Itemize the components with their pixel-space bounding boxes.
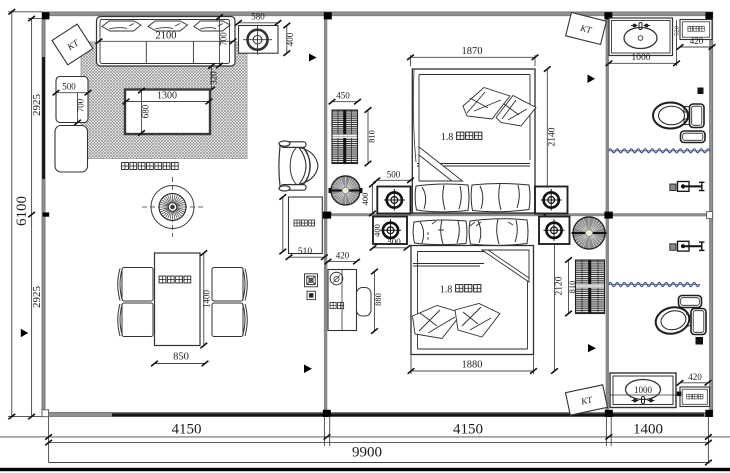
svg-text:520: 520 — [674, 26, 681, 36]
svg-text:400: 400 — [372, 224, 382, 237]
svg-text:1000: 1000 — [632, 53, 651, 63]
svg-text:400: 400 — [360, 193, 370, 206]
svg-text:420: 420 — [336, 251, 350, 261]
svg-text:1880: 1880 — [462, 360, 483, 371]
svg-text:450: 450 — [336, 91, 350, 101]
svg-text:500: 500 — [62, 82, 76, 92]
svg-text:580: 580 — [251, 12, 265, 22]
svg-text:6100: 6100 — [14, 196, 30, 226]
svg-text:4150: 4150 — [453, 422, 483, 438]
svg-text:500: 500 — [387, 170, 401, 180]
svg-text:2140: 2140 — [548, 127, 558, 146]
svg-text:2925: 2925 — [31, 286, 43, 309]
svg-text:2100: 2100 — [156, 31, 177, 42]
svg-text:420: 420 — [688, 372, 702, 382]
svg-text:500: 500 — [387, 237, 401, 247]
svg-text:700: 700 — [76, 98, 86, 112]
svg-text:2120: 2120 — [555, 276, 565, 295]
svg-text:810: 810 — [367, 130, 377, 143]
svg-text:1000: 1000 — [634, 385, 653, 395]
svg-text:850: 850 — [173, 352, 189, 363]
svg-text:1870: 1870 — [462, 46, 483, 57]
svg-text:810: 810 — [567, 281, 577, 294]
svg-text:510: 510 — [298, 247, 313, 257]
svg-text:420: 420 — [690, 36, 704, 46]
svg-text:1400: 1400 — [633, 422, 663, 438]
svg-text:880: 880 — [373, 293, 383, 306]
svg-text:1400: 1400 — [202, 290, 212, 309]
svg-text:400: 400 — [285, 32, 295, 46]
svg-text:1300: 1300 — [157, 91, 177, 102]
svg-text:2925: 2925 — [31, 94, 43, 117]
svg-text:1.8: 1.8 — [440, 285, 453, 296]
svg-text:680: 680 — [141, 104, 151, 118]
svg-text:1.8: 1.8 — [441, 132, 454, 143]
svg-text:320: 320 — [209, 71, 219, 85]
svg-text:700: 700 — [219, 32, 229, 46]
svg-text:4150: 4150 — [172, 422, 202, 438]
svg-text:9900: 9900 — [352, 445, 382, 461]
